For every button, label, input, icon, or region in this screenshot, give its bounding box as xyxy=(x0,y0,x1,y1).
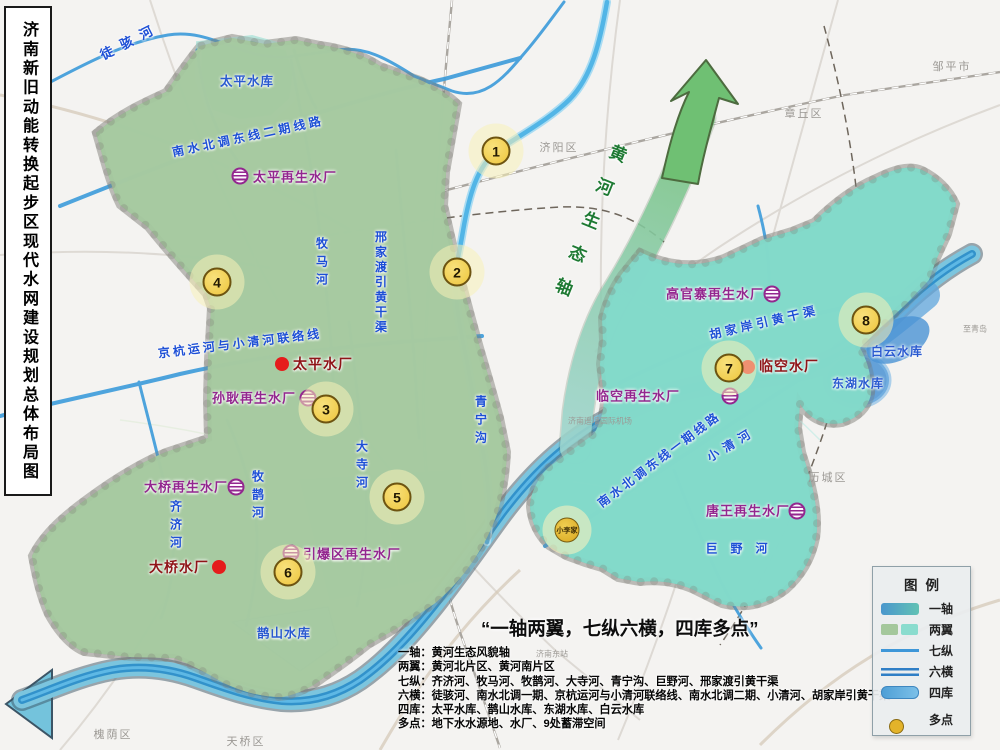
point-marker-1: 1 xyxy=(482,137,511,166)
reclaimed-plant-icon-daqiao xyxy=(228,479,245,496)
district-jiyang: 济阳区 xyxy=(540,139,579,155)
note-line-points: 多点：地下水水源地、水厂、9处蓄滞空间 xyxy=(398,717,890,731)
taiping-water-plant-label: 太平水厂 xyxy=(293,354,353,374)
qingning-river-label: 青宁沟 xyxy=(473,395,490,449)
point-marker-4: 4 xyxy=(203,268,232,297)
juye-river-label: 巨野河 xyxy=(705,540,780,557)
legend-row-wings: 两翼 xyxy=(873,619,970,640)
note-line-wings: 两翼：黄河北片区、黄河南片区 xyxy=(398,660,890,674)
note-line-horizontals: 六横：徒骇河、南水北调一期、京杭运河与小清河联络线、南水北调二期、小清河、胡家岸… xyxy=(398,689,890,703)
legend-swatch-horizontals xyxy=(881,668,919,676)
reclaimed-plant-icon-linkong xyxy=(722,388,739,405)
point-marker-3: 3 xyxy=(312,395,341,424)
qiji-river-label: 齐济河 xyxy=(168,500,185,554)
taiping-reservoir-label: 太平水库 xyxy=(220,71,274,90)
legend-label-horizontals: 六横 xyxy=(929,663,953,680)
legend-row-horizontals: 六横 xyxy=(873,661,970,682)
district-huaiyin: 槐荫区 xyxy=(94,726,133,742)
legend-row-points: 多点 xyxy=(873,703,970,735)
daqiao-reclaimed-plant-label: 大桥再生水厂 xyxy=(144,477,228,496)
water-plant-dot-daqiao xyxy=(212,560,226,574)
muma-river-label: 牧马河 xyxy=(314,237,331,291)
legend-label-points: 多点 xyxy=(929,711,953,728)
road-sign-qingdao: 至青岛 xyxy=(963,324,987,335)
point-marker-2: 2 xyxy=(443,258,472,287)
point-marker-5: 5 xyxy=(383,483,412,512)
legend-row-axis: 一轴 xyxy=(873,598,970,619)
legend-label-verticals: 七纵 xyxy=(929,642,953,659)
slogan-title: “一轴两翼，七纵六横，四库多点” xyxy=(481,615,759,641)
yinbao-reclaimed-plant-label: 引爆区再生水厂 xyxy=(303,544,401,563)
reclaimed-plant-icon-tangwang xyxy=(789,503,806,520)
district-zhangqiu: 章丘区 xyxy=(785,105,824,121)
legend-title: 图例 xyxy=(881,574,970,594)
xingjiadu-canal-label: 邢家渡引黄干渠 xyxy=(373,231,390,336)
notes-block: 一轴：黄河生态风貌轴 两翼：黄河北片区、黄河南片区 七纵：齐济河、牧马河、牧鹊河… xyxy=(398,646,890,732)
linkong-reclaimed-plant-label: 临空再生水厂 xyxy=(596,386,680,405)
legend-row-reservoirs: 四库 xyxy=(873,682,970,703)
legend-swatch-reservoirs xyxy=(881,686,919,699)
note-line-axis: 一轴：黄河生态风貌轴 xyxy=(398,646,890,660)
district-tianqiao: 天桥区 xyxy=(227,733,266,749)
district-zouping: 邹平市 xyxy=(933,58,972,74)
point-marker-xiaolijia: 小李家 xyxy=(555,518,580,543)
point-marker-6: 6 xyxy=(274,558,303,587)
map-title: 济南新旧动能转换起步区现代水网建设规划总体布局图 xyxy=(4,6,52,496)
gaoguanzhai-reclaimed-plant-label: 高官寨再生水厂 xyxy=(666,284,764,303)
legend-row-verticals: 七纵 xyxy=(873,640,970,661)
taiping-reclaimed-plant-label: 太平再生水厂 xyxy=(253,167,337,186)
district-licheng: 历城区 xyxy=(809,469,848,485)
legend-label-wings: 两翼 xyxy=(929,621,953,638)
dasi-river-label: 大寺河 xyxy=(354,440,371,494)
tangwang-reclaimed-plant-label: 唐王再生水厂 xyxy=(706,501,790,520)
sungeng-reclaimed-plant-label: 孙耿再生水厂 xyxy=(212,388,296,407)
daqiao-water-plant-label: 大桥水厂 xyxy=(149,557,209,577)
reclaimed-plant-icon-gaoguanzhai xyxy=(764,286,781,303)
point-marker-7: 7 xyxy=(715,354,744,383)
airport-label: 济南遥墙国际机场 xyxy=(568,416,632,427)
muque-river-label: 牧鹊河 xyxy=(250,470,267,524)
legend-box: 图例 一轴 两翼 七纵 六横 四库 多点 xyxy=(872,566,971,736)
point-marker-8: 8 xyxy=(852,306,881,335)
linkong-water-plant-label: 临空水厂 xyxy=(759,356,819,376)
legend-swatch-verticals xyxy=(881,649,919,652)
legend-label-reservoirs: 四库 xyxy=(929,684,953,701)
legend-swatch-axis xyxy=(881,603,919,615)
baiyun-reservoir-label: 白云水库 xyxy=(871,343,923,360)
queshan-reservoir-label: 鹊山水库 xyxy=(257,623,311,642)
legend-swatch-wings xyxy=(881,624,919,635)
planning-map: 济南新旧动能转换起步区现代水网建设规划总体布局图 黄河生态轴 徒骇河 太平水库 … xyxy=(0,0,1000,750)
note-line-verticals: 七纵：齐济河、牧马河、牧鹊河、大寺河、青宁沟、巨野河、邢家渡引黄干渠 xyxy=(398,675,890,689)
legend-label-axis: 一轴 xyxy=(929,600,953,617)
water-plant-dot-taiping xyxy=(275,357,289,371)
donghu-reservoir-label: 东湖水库 xyxy=(832,375,884,392)
reclaimed-plant-icon-taiping xyxy=(232,168,249,185)
note-line-reservoirs: 四库：太平水库、鹊山水库、东湖水库、白云水库 xyxy=(398,703,890,717)
